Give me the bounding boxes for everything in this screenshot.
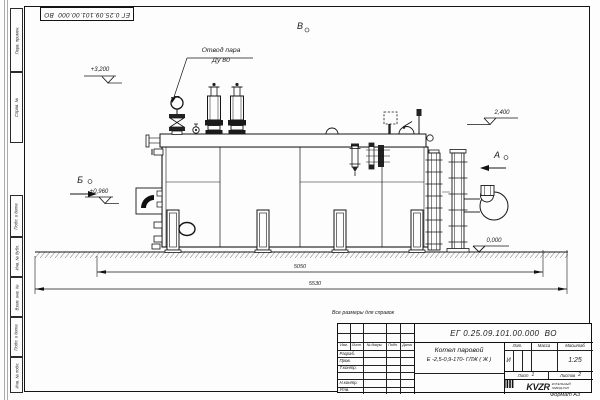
tb-logo-caption-2: ЗАВОД РЭП bbox=[552, 387, 571, 390]
level-probe bbox=[417, 109, 422, 134]
air-vent bbox=[193, 124, 199, 133]
tb-line bbox=[338, 387, 414, 388]
tb-lit-value: И bbox=[504, 350, 513, 371]
tb-row-prov: Пров. bbox=[340, 359, 351, 363]
tb-sheets-value: 2 bbox=[578, 372, 581, 378]
elevation-mark-0000 bbox=[473, 246, 509, 252]
ground bbox=[35, 252, 568, 258]
reference-dimensions-note: Все размеры для справок bbox=[332, 311, 394, 316]
rear-flanged-column bbox=[426, 150, 443, 250]
tb-line bbox=[414, 373, 504, 374]
dimension-5050-label: 5050 bbox=[278, 265, 322, 271]
elevation-mark-2400 bbox=[467, 118, 518, 125]
steam-outlet-valve bbox=[169, 96, 185, 135]
tb-sheets-label: Листов bbox=[560, 373, 575, 378]
tb-col-sign: Подп. bbox=[386, 344, 400, 348]
tb-line bbox=[522, 350, 523, 371]
tb-scale-header: Масштаб bbox=[557, 344, 593, 348]
tb-row-nkontr: Н.контр. bbox=[340, 381, 358, 385]
elevation-0960-label: +0,960 bbox=[84, 189, 114, 195]
tb-line bbox=[363, 324, 364, 394]
support-leg bbox=[409, 210, 425, 253]
tb-logo-caption: КОТЕЛЬНЫЙ ЗАВОД РЭП bbox=[552, 383, 571, 390]
elevation-mark-3200 bbox=[84, 76, 122, 83]
support-leg bbox=[255, 210, 271, 253]
manhole bbox=[179, 223, 195, 236]
tb-product-type: Е -2,5-0,9-170- ГЛЖ ( Ж ) bbox=[414, 358, 504, 364]
tb-logo-text: KVZR bbox=[526, 382, 549, 392]
format-note: Формат А3 bbox=[540, 393, 590, 399]
tb-sheets-cell: Листов 2 bbox=[548, 371, 593, 379]
tb-row-razrab: Разраб. bbox=[340, 352, 356, 356]
steam-drum-band bbox=[146, 134, 433, 147]
support-leg bbox=[332, 210, 348, 253]
drawing-sheet: Перв. примен. Справ. № Подп. и дата Инв.… bbox=[0, 0, 600, 400]
tb-line bbox=[400, 324, 401, 394]
elevation-mark-0960 bbox=[85, 197, 119, 204]
tb-sheet-label: Лист bbox=[518, 373, 529, 378]
tb-col-izm: Изм. bbox=[338, 344, 350, 348]
tb-sheet-cell: Лист 1 bbox=[504, 371, 548, 379]
safety-valve-2 bbox=[228, 83, 246, 134]
steam-callout-line2: Ду 80 bbox=[189, 57, 253, 64]
elevation-3200-label: +3,200 bbox=[83, 67, 117, 73]
view-marker-b: Б bbox=[74, 176, 86, 185]
steam-callout-line1: Отвод пара bbox=[189, 47, 253, 54]
dimension-5530-label: 5530 bbox=[293, 282, 337, 288]
blower-fan bbox=[464, 186, 508, 221]
title-block: ЕГ 0.25.09.101.00.000 ВО Котел паровой Е… bbox=[337, 323, 592, 393]
tb-col-date: Дата bbox=[400, 344, 414, 348]
tb-line bbox=[513, 350, 514, 371]
view-marker-v: В bbox=[294, 22, 306, 31]
kvzr-stripes-icon bbox=[504, 379, 514, 389]
view-marker-a: А bbox=[491, 151, 503, 160]
tb-line bbox=[338, 333, 414, 334]
tb-product-name: Котел паровой bbox=[414, 348, 504, 355]
elevation-0000-label: 0,000 bbox=[478, 238, 510, 244]
downcomer-pipe bbox=[447, 150, 469, 253]
small-dome bbox=[326, 128, 338, 134]
tb-doc-number: ЕГ 0.25.09.101.00.000 ВО bbox=[414, 324, 593, 342]
tb-line bbox=[338, 372, 414, 373]
tb-row-tkontr: Т.контр. bbox=[340, 366, 357, 370]
tb-row-utv: Утв. bbox=[340, 388, 350, 392]
tb-scale-value: 1:25 bbox=[557, 350, 593, 371]
tb-sheet-value: 1 bbox=[532, 372, 535, 378]
tb-mass-header: Масса bbox=[531, 344, 557, 348]
support-leg bbox=[165, 210, 181, 253]
hatch-opening-dashed bbox=[384, 112, 397, 134]
tb-col-doc: № докум. bbox=[363, 344, 386, 348]
tb-col-list: Лист bbox=[350, 344, 363, 348]
elevation-2400-label: 2,400 bbox=[486, 110, 518, 116]
lever-dome bbox=[399, 122, 414, 135]
burner-unit bbox=[136, 188, 162, 214]
tb-line bbox=[386, 324, 387, 394]
tb-lit-header: Лит. bbox=[504, 344, 531, 348]
safety-valve-1 bbox=[205, 83, 223, 134]
